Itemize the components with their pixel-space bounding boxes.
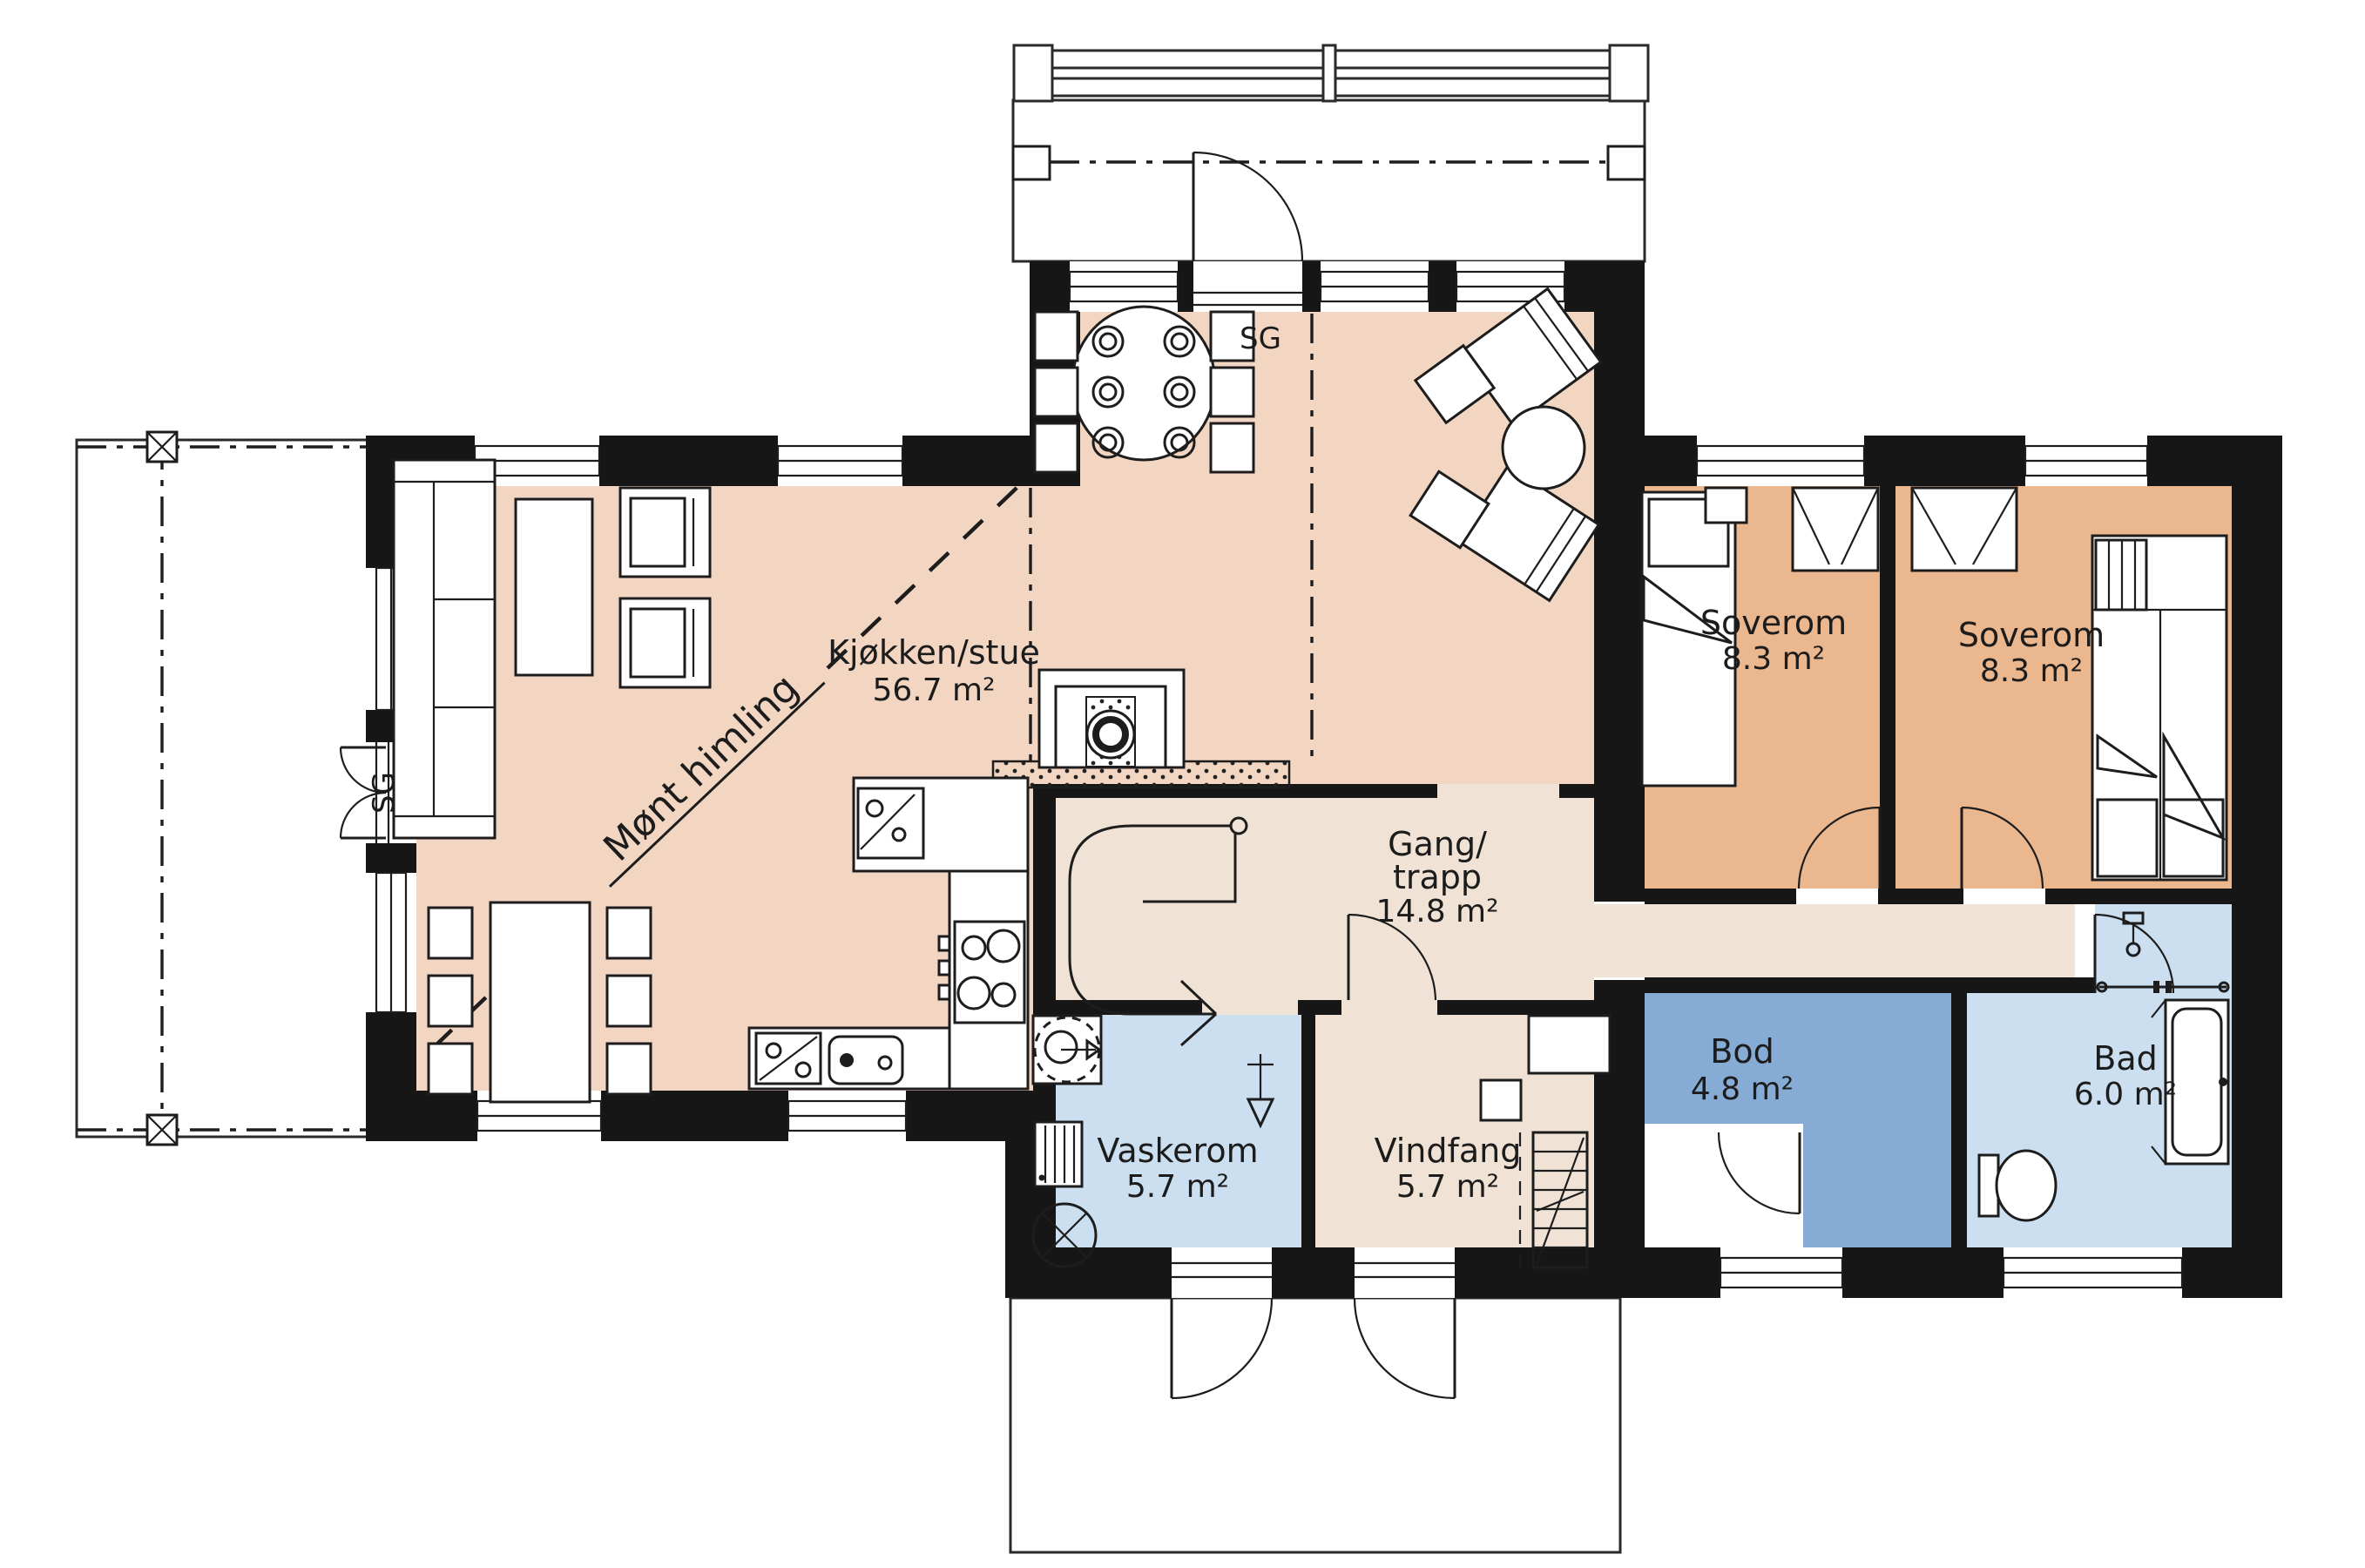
- window: [2025, 436, 2147, 486]
- bod-entry-alcove: [1645, 1124, 1803, 1247]
- terrace-post-icon: [147, 432, 177, 462]
- sofa: [394, 460, 495, 838]
- bottom-deck: [1010, 1298, 1620, 1552]
- window: [1070, 261, 1178, 312]
- label-vaskerom: Vaskerom: [1097, 1132, 1258, 1170]
- dishwasher-icon: [858, 788, 923, 858]
- armchair: [620, 598, 710, 687]
- wardrobe: [1793, 488, 1878, 571]
- window: [1321, 261, 1429, 312]
- bed-bunk: [2092, 536, 2226, 880]
- wardrobe: [1912, 488, 2017, 571]
- sg-label-left: SG: [367, 772, 402, 814]
- armchair: [620, 488, 710, 577]
- label-bod: Bod: [1710, 1032, 1774, 1071]
- window: [778, 436, 902, 486]
- window: [1697, 436, 1864, 486]
- area-soverom-1: 8.3 m²: [1722, 641, 1825, 677]
- coffee-table: [516, 499, 592, 675]
- label-kjokken-stue: Kjøkken/stue: [828, 633, 1040, 672]
- area-soverom-2: 8.3 m²: [1980, 653, 2083, 689]
- window: [2003, 1247, 2182, 1298]
- label-bad: Bad: [2093, 1039, 2157, 1078]
- room-gang-trapp: [1056, 784, 1594, 1015]
- label-gang-2: trapp: [1393, 858, 1482, 896]
- hall-corridor: [1594, 904, 2075, 977]
- area-gang: 14.8 m²: [1375, 894, 1498, 929]
- svg-text:SG: SG: [367, 772, 402, 814]
- window: [1720, 1247, 1842, 1298]
- area-vindfang: 5.7 m²: [1396, 1169, 1499, 1205]
- oval-dining-table: [1035, 307, 1253, 472]
- window: [366, 873, 416, 1012]
- toilet-icon: [1979, 1151, 2056, 1220]
- label-soverom-2: Soverom: [1958, 616, 2105, 654]
- area-bad: 6.0 m²: [2074, 1077, 2177, 1112]
- washing-machine-icon: [1033, 1016, 1101, 1084]
- left-terrace: [77, 432, 386, 1145]
- round-table: [1503, 407, 1585, 489]
- nightstand: [1706, 488, 1747, 523]
- terrace-post-icon: [147, 1115, 177, 1145]
- label-vindfang: Vindfang: [1375, 1132, 1522, 1170]
- label-soverom-1: Soverom: [1700, 604, 1847, 642]
- area-vaskerom: 5.7 m²: [1126, 1169, 1229, 1205]
- cabinet-icon: [1035, 1122, 1082, 1186]
- window: [788, 1091, 906, 1141]
- dining-table: [429, 902, 651, 1102]
- sg-label-top: SG: [1240, 321, 1281, 356]
- top-porch: [1013, 45, 1648, 261]
- area-kjokken-stue: 56.7 m²: [872, 672, 995, 708]
- floor-plan-drawing: Kjøkken/stue 56.7 m² Gang/ trapp 14.8 m²…: [0, 0, 2365, 1568]
- area-bod: 4.8 m²: [1691, 1071, 1794, 1107]
- floor-plan-page: Kjøkken/stue 56.7 m² Gang/ trapp 14.8 m²…: [0, 0, 2365, 1568]
